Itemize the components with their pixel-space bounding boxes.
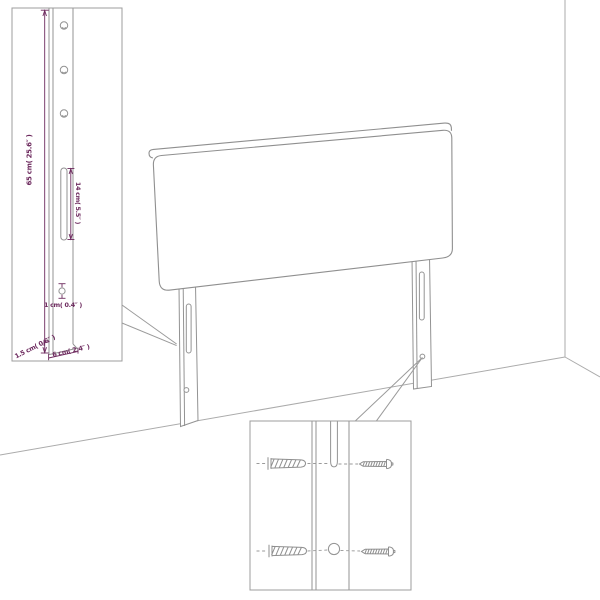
right-leg-slot	[419, 272, 424, 320]
left-leg-slot	[186, 304, 191, 353]
headboard-panel	[149, 123, 452, 290]
diagram-canvas: 65 cm( 25.6″ ) 14 cm( 5.5″ ) 1 cm( 0.4″ …	[0, 0, 600, 600]
left-leg-hole	[184, 388, 189, 393]
callout-left-upper	[122, 305, 177, 344]
line-art	[0, 0, 600, 600]
headboard-left-leg	[179, 285, 198, 427]
inset-wall-mount	[250, 421, 411, 590]
dim-hole-diameter-label: 1 cm( 0.4″ )	[44, 301, 82, 307]
headboard-right-leg	[412, 256, 432, 389]
dim-slot-length-label: 14 cm( 5.5″ )	[74, 182, 80, 224]
dim-total-height-label: 65 cm( 25.6″ )	[27, 134, 34, 185]
callout-left-lower	[122, 323, 177, 346]
callout-lines	[122, 305, 422, 421]
callout-right-a	[356, 358, 423, 421]
